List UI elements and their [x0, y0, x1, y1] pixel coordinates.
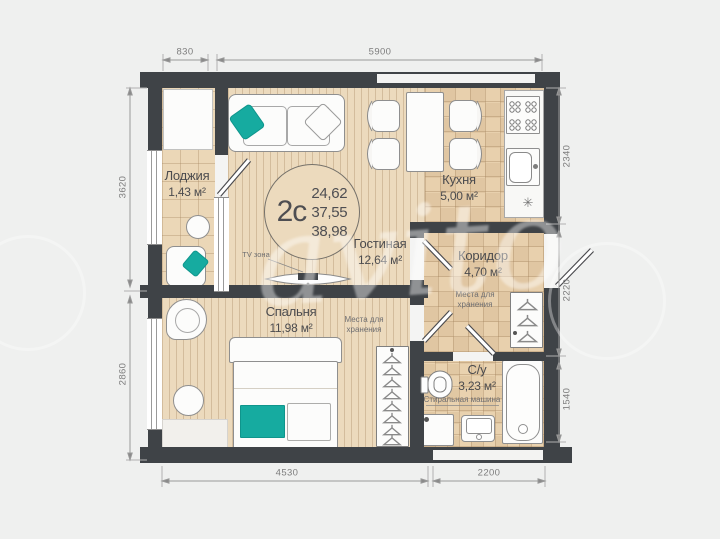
unit-summary-badge: 2с 24,62 37,55 38,98 — [264, 164, 360, 260]
room-label-bathroom: С/у3,23 м² — [458, 362, 496, 394]
room-label-living: Гостиная12,64 м² — [354, 236, 407, 268]
washing-machine-label: Стиральная машина — [424, 395, 501, 405]
unit-area-full: 38,98 — [311, 222, 347, 241]
tv-icon — [298, 273, 318, 280]
room-name: Гостиная — [354, 236, 407, 252]
unit-area-living: 37,55 — [311, 203, 347, 222]
toilet — [421, 371, 452, 398]
room-area: 4,70 м² — [458, 264, 508, 280]
room-name: Спальня — [266, 304, 317, 320]
living-door — [424, 241, 451, 269]
dim-bottom-2200: 2200 — [478, 468, 501, 479]
stove-burners — [510, 102, 536, 130]
room-name: Лоджия — [165, 168, 210, 184]
storage-label-bedroom: Места для хранения — [342, 315, 386, 335]
storage-label-corridor: Места для хранения — [453, 290, 497, 310]
floorplan-canvas: ✳ — [0, 0, 720, 539]
chair-backs — [368, 101, 482, 169]
room-label-bedroom: Спальня11,98 м² — [266, 304, 317, 336]
unit-type: 2с — [277, 195, 307, 229]
room-area: 12,64 м² — [354, 252, 407, 268]
dim-top-830: 830 — [176, 47, 193, 58]
room-area: 11,98 м² — [266, 320, 317, 336]
room-name: Кухня — [440, 172, 478, 188]
room-name: С/у — [458, 362, 496, 378]
dim-left-3620: 3620 — [118, 176, 129, 199]
wardrobe-hangers — [384, 348, 400, 445]
dim-right-2340: 2340 — [562, 145, 573, 168]
plan-overlay — [0, 0, 720, 539]
closet-hangers — [513, 299, 536, 342]
loggia-door — [219, 160, 249, 195]
room-name: Коридор — [458, 248, 508, 264]
bathroom-door — [467, 326, 494, 354]
dim-bottom-4530: 4530 — [276, 468, 299, 479]
room-label-corridor: Коридор4,70 м² — [458, 248, 508, 280]
room-label-kitchen: Кухня5,00 м² — [440, 172, 478, 204]
dim-top-5900: 5900 — [369, 47, 392, 58]
room-area: 5,00 м² — [440, 188, 478, 204]
tv-console — [266, 273, 350, 285]
unit-area-total: 24,62 — [311, 184, 347, 203]
tv-zone-label: TV зона — [242, 250, 270, 260]
dim-right-2220: 2220 — [562, 279, 573, 302]
room-area: 3,23 м² — [458, 378, 496, 394]
room-label-loggia: Лоджия1,43 м² — [165, 168, 210, 200]
dim-right-1540: 1540 — [562, 388, 573, 411]
room-area: 1,43 м² — [165, 184, 210, 200]
bedroom-door — [424, 312, 451, 341]
dim-left-2860: 2860 — [118, 363, 129, 386]
